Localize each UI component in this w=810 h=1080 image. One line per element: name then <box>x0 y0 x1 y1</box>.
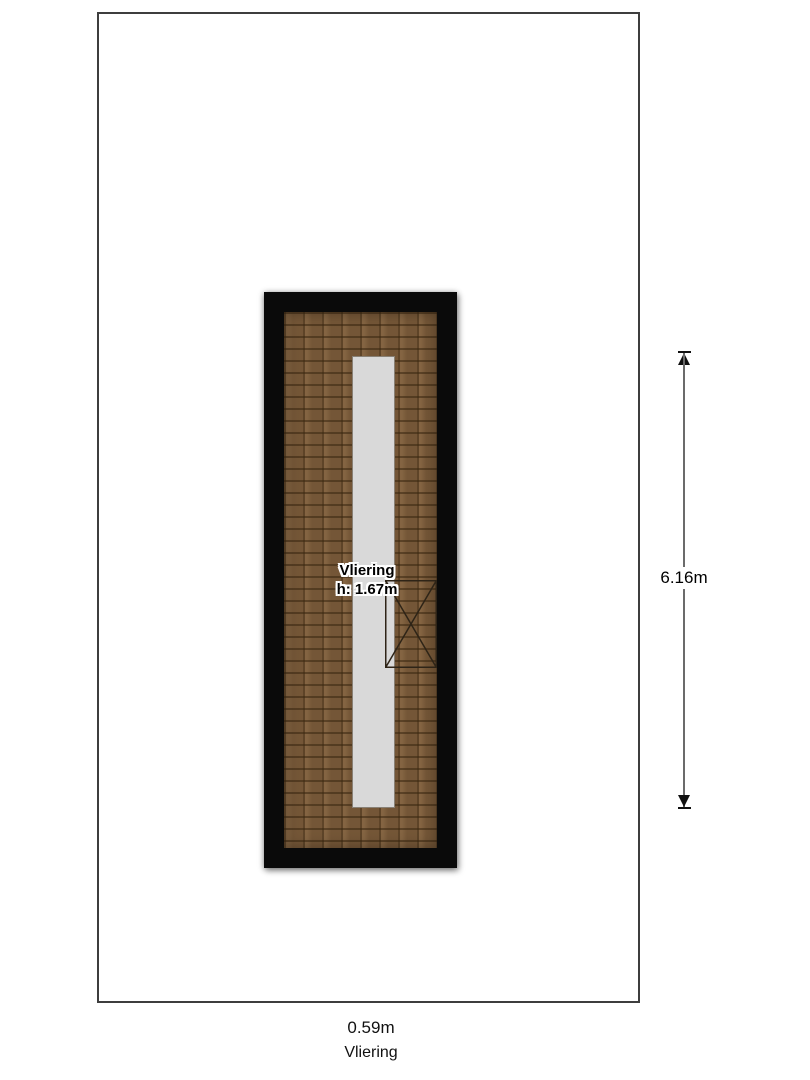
vertical-dimension: 6.16m <box>670 351 698 809</box>
room-name-text: Vliering <box>337 561 398 580</box>
dimension-length-label: 6.16m <box>658 567 709 589</box>
footer-room-name: Vliering <box>344 1044 397 1062</box>
room-label: Vliering h: 1.67m <box>337 561 398 599</box>
floorplan-canvas: Vliering h: 1.67m 6.16m 0.59m Vliering <box>0 0 810 1080</box>
footer-width-label: 0.59m <box>347 1018 394 1038</box>
arrow-down-icon <box>678 795 690 807</box>
room-height-text: h: 1.67m <box>337 580 398 599</box>
dimension-end-tick-bottom <box>678 807 691 809</box>
